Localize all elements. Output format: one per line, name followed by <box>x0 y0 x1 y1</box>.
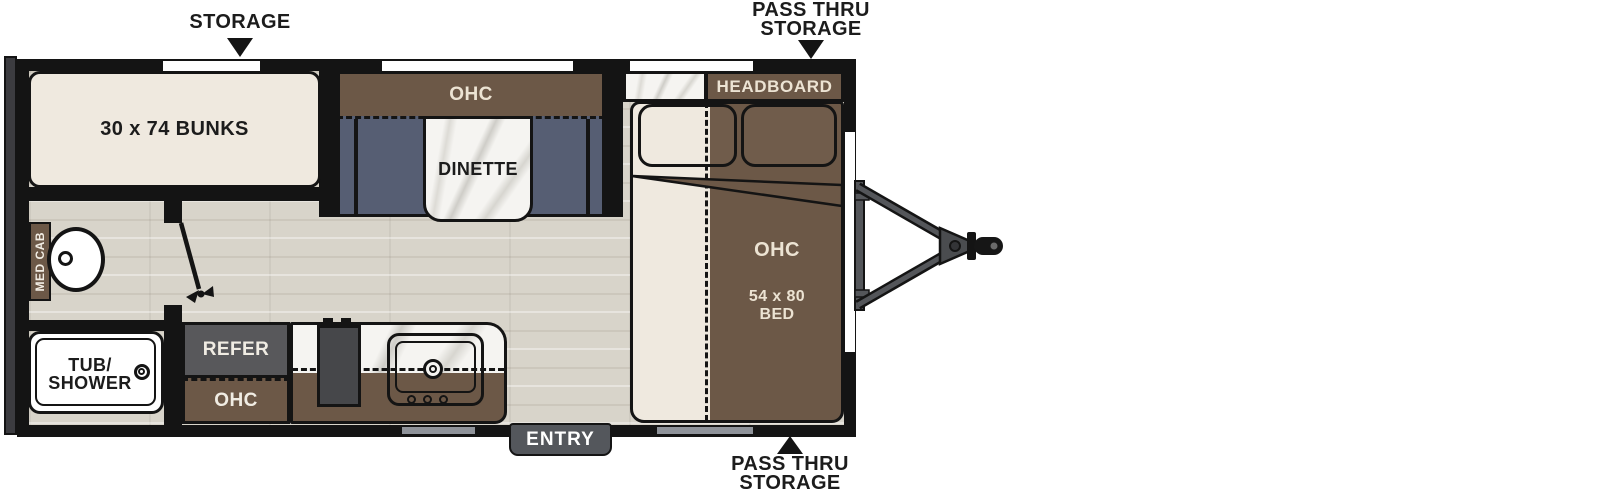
bed-size-line1: 54 x 80 <box>727 288 827 306</box>
hitch-crossbar <box>855 181 864 310</box>
bench-divider <box>354 119 358 214</box>
tub-label-line2: SHOWER <box>30 374 150 392</box>
hitch-tube <box>858 187 950 240</box>
kitchen-door-strip <box>402 427 475 434</box>
faucet-center-icon <box>429 365 437 373</box>
cooktop <box>317 325 361 407</box>
hitch-tube-outline <box>858 251 952 305</box>
down-arrow-icon <box>798 40 824 59</box>
sink-knob-icon <box>407 395 416 404</box>
toilet-flush-icon <box>58 251 73 266</box>
sink-knob-icon <box>439 395 448 404</box>
headboard: HEADBOARD <box>705 71 844 102</box>
front-wall-opening <box>845 132 855 352</box>
bath-wall-vertical <box>164 305 182 425</box>
dinette-bed-wall <box>605 71 623 217</box>
dinette-table: DINETTE <box>423 116 533 222</box>
rear-bumper <box>4 56 17 435</box>
bed-nightstand <box>623 71 707 102</box>
hitch-ball <box>974 237 1003 255</box>
bath-wall-horizontal <box>29 320 164 331</box>
refrigerator: REFER <box>182 322 290 378</box>
bunks-wall <box>29 187 337 201</box>
refer-label: REFER <box>203 339 269 361</box>
bed-pillow <box>741 104 837 167</box>
headboard-label: HEADBOARD <box>717 77 833 97</box>
storage-access-door <box>163 61 260 71</box>
pass-thru-bottom-label-line2: STORAGE <box>712 474 868 492</box>
hitch-ball-center-icon <box>991 243 998 250</box>
up-arrow-icon <box>777 436 803 454</box>
down-arrow-icon <box>227 38 253 57</box>
tub-label-line1: TUB/ <box>30 356 150 374</box>
dinette-table-label: DINETTE <box>438 159 518 180</box>
coupler-latch <box>967 232 976 260</box>
entry-label: ENTRY <box>526 429 595 451</box>
bed-ohc-label: OHC <box>727 239 827 262</box>
bench-divider <box>586 119 590 214</box>
sink-knob-icon <box>423 395 432 404</box>
hitch-tab <box>855 193 869 200</box>
hitch-tube-outline <box>858 187 952 241</box>
bunks-label: 30 x 74 BUNKS <box>100 118 249 141</box>
pass-thru-door-strip <box>657 427 753 434</box>
dinette-ohc-label: OHC <box>449 84 492 106</box>
hitch-coupler <box>940 228 972 264</box>
storage-callout-label: STORAGE <box>140 11 340 34</box>
floorplan-canvas: STORAGE PASS THRU STORAGE 30 x 74 BUNKS … <box>0 0 1600 492</box>
bunks-dinette-wall <box>319 71 337 217</box>
drain-center-icon <box>138 368 145 375</box>
bunks: 30 x 74 BUNKS <box>28 71 321 188</box>
entry-door: ENTRY <box>509 423 612 456</box>
toilet <box>47 227 105 292</box>
bath-door-jamb <box>164 198 182 223</box>
dinette-window <box>382 61 573 71</box>
dinette-ohc: OHC <box>337 71 605 116</box>
coupler-hole-icon <box>950 241 960 251</box>
bed-size-line2: BED <box>727 306 827 324</box>
kitchen-ohc-label: OHC <box>214 390 257 412</box>
trailer-hitch <box>855 181 1003 310</box>
kitchen-ohc: OHC <box>182 378 290 424</box>
hitch-tube <box>858 252 950 305</box>
hitch-tab <box>855 290 869 297</box>
med-cab-label: MED CAB <box>33 232 47 292</box>
bed-centerline <box>705 102 708 421</box>
bed-window <box>630 61 753 71</box>
bed-pillow <box>638 104 737 167</box>
pass-thru-top-label-line2: STORAGE <box>736 20 886 39</box>
